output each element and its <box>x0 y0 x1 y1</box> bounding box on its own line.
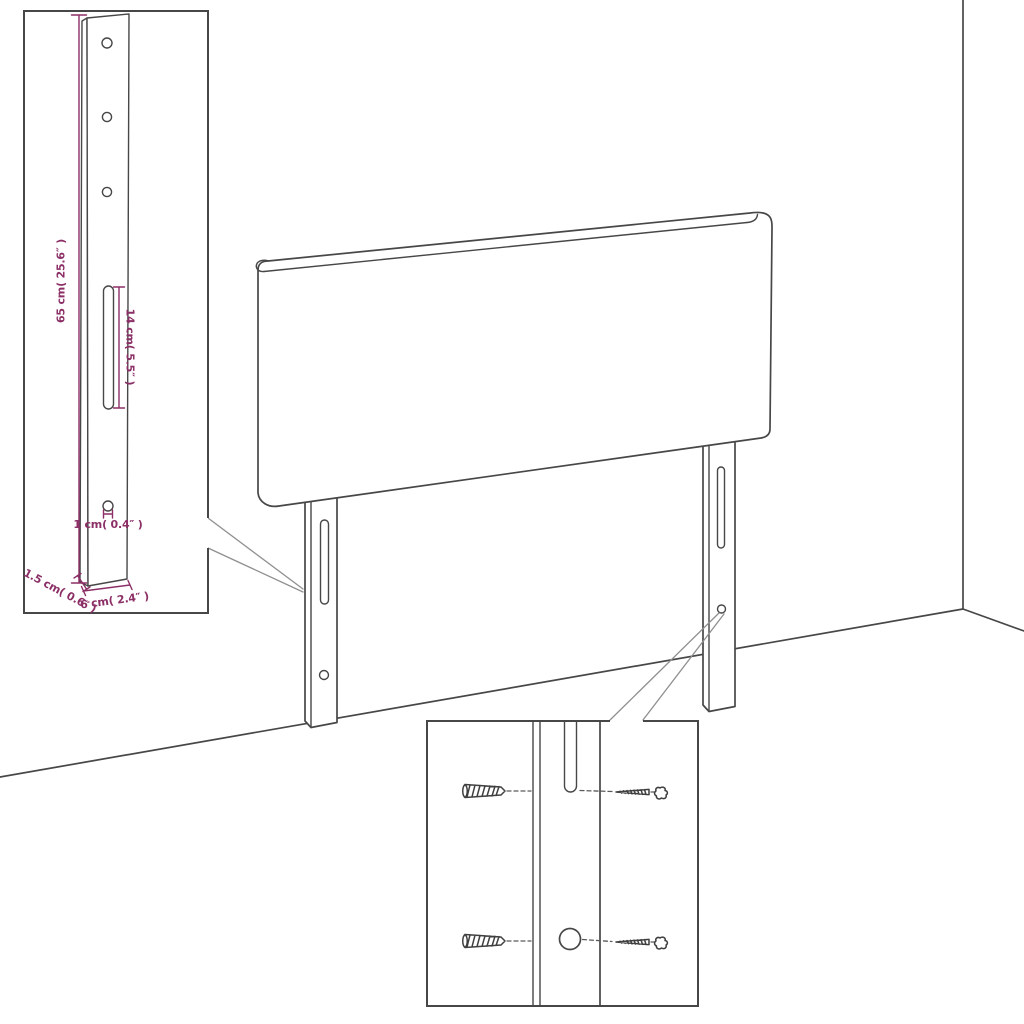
panel-outline <box>258 212 772 506</box>
callout-lines <box>208 518 724 720</box>
right-leg-body <box>703 426 735 712</box>
inset-callout-line-lower <box>208 548 303 592</box>
screw-detail-box <box>427 721 698 1006</box>
screwbox-fill <box>427 721 698 1006</box>
inset-detail-box: 65 cm( 25.6″ ) 14 cm( 5.5″ ) 1 cm( 0.4″ … <box>21 11 208 616</box>
dim-slot-label: 14 cm( 5.5″ ) <box>124 309 137 386</box>
diagram-canvas: 65 cm( 25.6″ ) 14 cm( 5.5″ ) 1 cm( 0.4″ … <box>0 0 1024 1024</box>
headboard-panel <box>256 212 772 506</box>
headboard-dimension-diagram: 65 cm( 25.6″ ) 14 cm( 5.5″ ) 1 cm( 0.4″ … <box>0 0 1024 1024</box>
dim-hole-label: 1 cm( 0.4″ ) <box>73 518 142 531</box>
bracket-front-face <box>87 14 129 586</box>
inset-callout-line-upper <box>208 518 303 589</box>
dim-height-label: 65 cm( 25.6″ ) <box>55 239 68 323</box>
left-leg <box>305 465 337 728</box>
right-leg <box>703 426 735 712</box>
